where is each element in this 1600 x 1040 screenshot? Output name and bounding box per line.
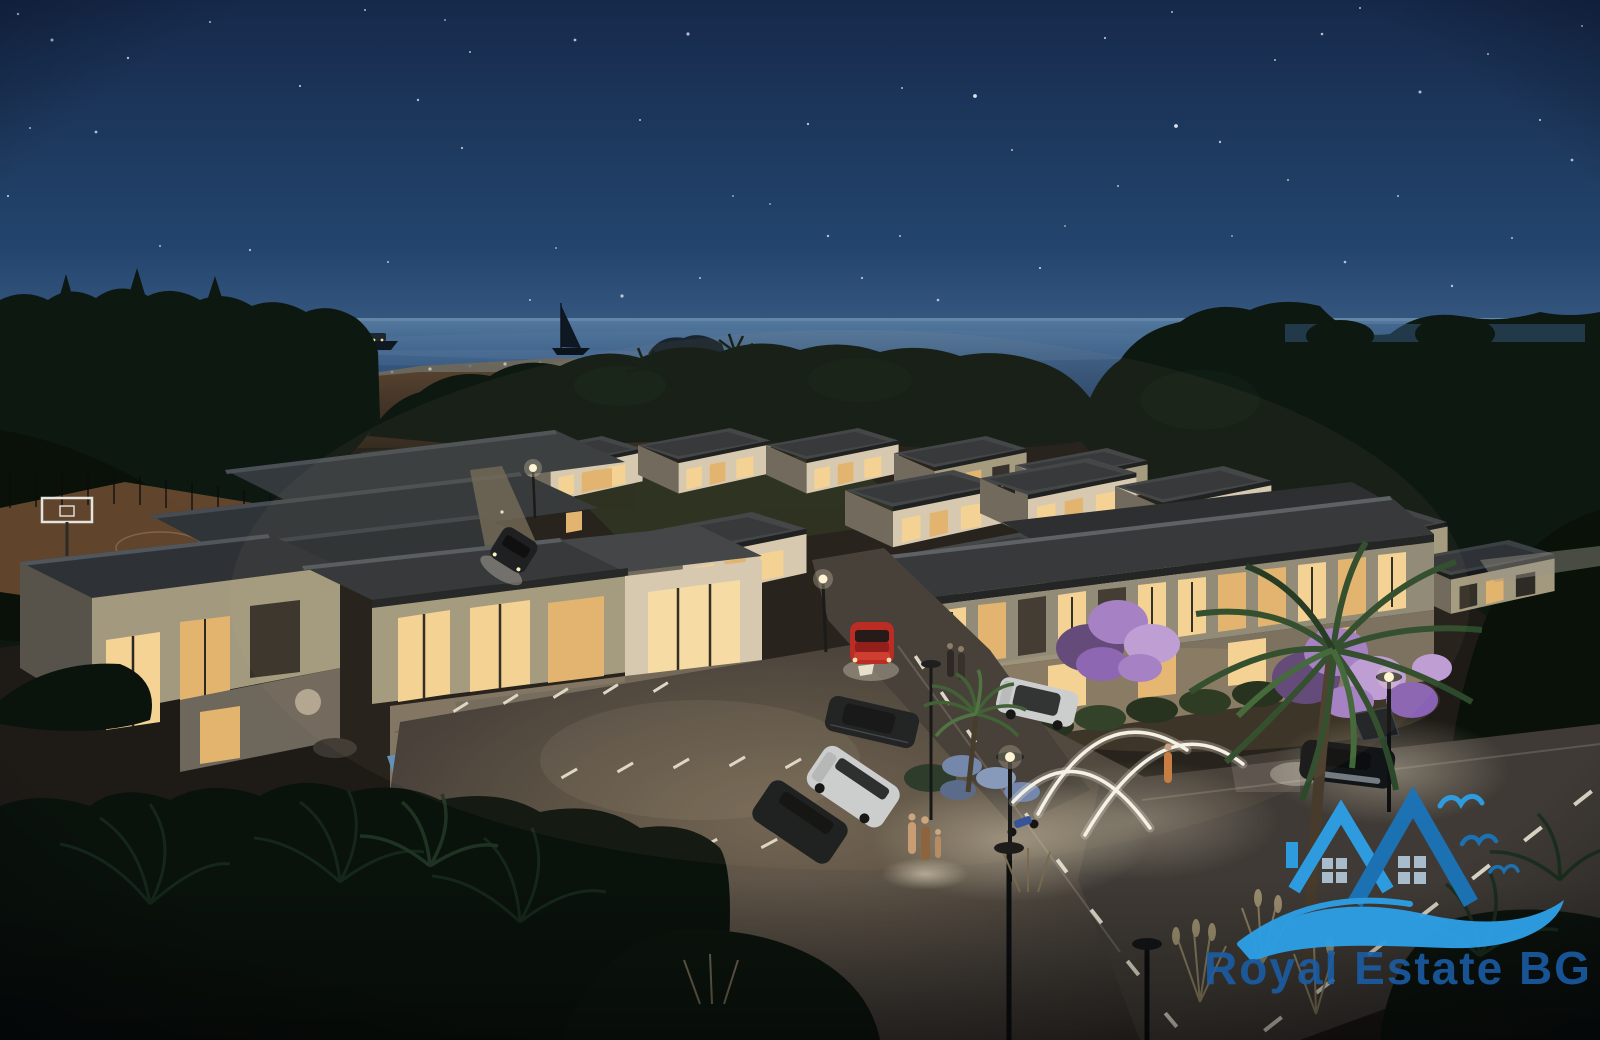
watermark-brand-text: Royal Estate BG [1204, 942, 1592, 994]
render-canvas: Royal Estate BG [0, 0, 1600, 1040]
logo-chimney [1286, 842, 1298, 868]
night-render-scene: Royal Estate BG [0, 0, 1600, 1040]
